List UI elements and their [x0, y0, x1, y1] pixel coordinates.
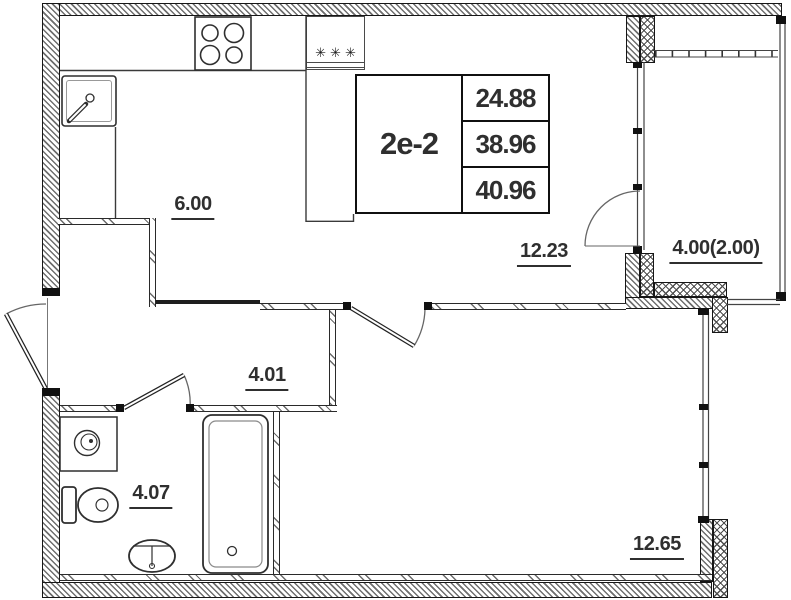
label-bedroom-area: 12.65 — [630, 533, 684, 560]
washing-machine-icon — [60, 417, 117, 471]
toilet-icon — [62, 487, 118, 523]
bathroom-door — [116, 375, 194, 412]
unit-area-living: 24.88 — [463, 76, 548, 122]
washbasin-icon — [129, 540, 175, 572]
bedroom-door — [343, 302, 432, 346]
label-balcony-area: 4.00(2.00) — [669, 237, 762, 264]
bathtub-icon — [203, 415, 268, 573]
label-hallway-area: 4.01 — [245, 364, 288, 391]
balcony-window-door — [585, 62, 644, 253]
unit-info-table: 2е-2 24.88 38.96 40.96 — [355, 74, 550, 214]
kitchen-sink-icon — [62, 76, 116, 126]
floor-plan: ✳✳✳ — [0, 0, 791, 600]
stove-icon — [195, 17, 251, 70]
unit-area-total-balcony: 40.96 — [463, 168, 548, 212]
unit-type-label: 2е-2 — [357, 76, 463, 212]
unit-area-rows: 24.88 38.96 40.96 — [463, 76, 548, 212]
label-living-area: 12.23 — [517, 240, 571, 267]
label-bathroom-area: 4.07 — [129, 482, 172, 509]
entrance-door — [6, 288, 60, 396]
label-kitchen-area: 6.00 — [171, 193, 214, 220]
bedroom-window — [698, 308, 709, 523]
unit-area-total: 38.96 — [463, 122, 548, 168]
